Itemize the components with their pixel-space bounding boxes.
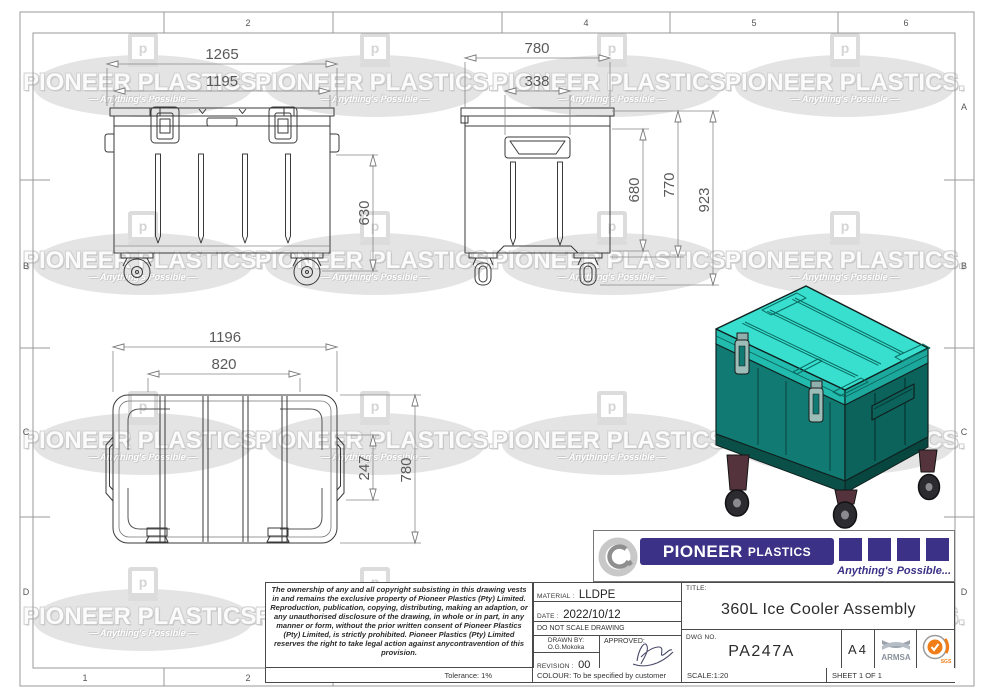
rib <box>243 154 248 243</box>
drawing-sheet: pPIONEER PLASTICS.— Anything's Possible … <box>0 0 990 700</box>
logo-wordmark: PIONEER PLASTICS <box>640 538 834 565</box>
signature <box>629 637 679 667</box>
drawing-title: 360L Ice Cooler Assembly <box>682 590 955 629</box>
dwg-no-cell: DWG NO. PA247A <box>682 630 842 668</box>
dwg-no-value: PA247A <box>682 636 841 668</box>
material-label: MATERIAL : <box>537 593 574 600</box>
rib <box>558 162 563 245</box>
sheet-note: SHEET 1 OF 1 <box>827 668 955 683</box>
brand-tagline: Anything's Possible... <box>837 565 951 577</box>
brand-name: PIONEER <box>663 542 743 562</box>
title-block: MATERIAL : LLDPE DATE : 2022/10/12 DO NO… <box>533 582 955 683</box>
grid-label: B <box>23 261 29 271</box>
dim-body-height: 770 <box>661 172 678 197</box>
grid-label: 6 <box>903 18 908 28</box>
rib <box>199 154 204 243</box>
side-view <box>461 108 614 285</box>
caster-wheel <box>834 490 858 528</box>
grid-label: 2 <box>245 18 250 28</box>
drawn-by-cell: DRAWN BY: O.G.Mokoka <box>533 636 600 653</box>
logo-square <box>926 538 949 561</box>
date-label: DATE : <box>537 613 559 620</box>
grid-label: 4 <box>583 18 588 28</box>
dim-body-height: 630 <box>356 200 373 225</box>
grid-label: C <box>961 427 968 437</box>
armsa-cert-cell: ARMSA <box>875 630 917 668</box>
tolerance-note: Tolerance: 1% <box>266 667 532 682</box>
paper-size-cell: A4 <box>842 630 875 668</box>
dim-overall-height: 923 <box>696 187 713 212</box>
logo-square <box>839 538 862 561</box>
front-view-dim-text: 1265 1195 630 <box>205 46 373 226</box>
pioneer-swirl-icon <box>596 534 640 580</box>
grid-label: D <box>961 587 968 597</box>
logo-square <box>897 538 920 561</box>
sgs-logo: SGS <box>920 633 952 665</box>
material-value: LLDPE <box>579 589 615 601</box>
date-value: 2022/10/12 <box>563 609 621 621</box>
grid-label: A <box>961 102 967 112</box>
rib <box>511 162 516 245</box>
grid-label: B <box>961 261 967 271</box>
dim-overall-depth: 780 <box>398 457 415 482</box>
dim-handle-width: 338 <box>524 73 549 90</box>
copyright-text: The ownership of any and all copyright s… <box>270 585 528 667</box>
grid-label: 1 <box>82 673 87 683</box>
colour-note: COLOUR: To be specified by customer <box>533 668 682 683</box>
dim-overall-width: 1265 <box>205 46 238 63</box>
drawn-by-label: DRAWN BY: <box>533 637 599 644</box>
svg-text:ARMSA: ARMSA <box>881 653 911 662</box>
latch <box>151 107 179 143</box>
grid-label: 2 <box>245 673 250 683</box>
latch <box>809 381 823 422</box>
top-view <box>106 395 344 543</box>
grid-label: 5 <box>751 18 756 28</box>
caster <box>469 253 497 285</box>
caster-mark <box>267 528 289 542</box>
material-cell: MATERIAL : LLDPE <box>533 582 682 602</box>
side-handle <box>505 137 570 158</box>
dim-lid-width: 1195 <box>206 73 238 90</box>
company-logo-block: PIONEER PLASTICS Anything's Possible... <box>593 530 955 582</box>
drawn-by-value: O.G.Mokoka <box>533 644 599 651</box>
sgs-cert-cell: SGS <box>917 630 955 668</box>
armsa-logo: ARMSA <box>876 632 916 666</box>
top-view-dim-text: 1196 820 247 780 <box>209 329 415 483</box>
grid-label: D <box>23 587 30 597</box>
scale-note: SCALE:1:20 <box>682 668 827 683</box>
caster-wheel <box>726 455 750 516</box>
logo-square <box>868 538 891 561</box>
dim-inner-height: 680 <box>626 177 643 202</box>
rib <box>156 154 161 243</box>
lid-handle <box>207 118 237 126</box>
copyright-block: The ownership of any and all copyright s… <box>265 582 533 683</box>
dim-overall-depth: 780 <box>524 40 549 57</box>
brand-name-2: PLASTICS <box>748 545 811 559</box>
dim-overall-length: 1196 <box>209 329 241 346</box>
caster <box>574 253 602 285</box>
latch <box>269 107 297 143</box>
revision-cell: REVISION : 00 <box>533 653 600 668</box>
caster <box>121 253 153 285</box>
latch <box>735 333 749 374</box>
top-view-dimensions <box>113 344 421 543</box>
caster-wheel <box>919 450 940 500</box>
dim-lid-length: 820 <box>211 356 236 373</box>
grid-label: C <box>23 427 30 437</box>
side-view-dimensions <box>465 55 719 285</box>
rib <box>286 154 291 243</box>
caster <box>291 253 323 285</box>
no-scale-note: DO NOT SCALE DRAWING <box>533 622 682 636</box>
side-handle-tab <box>105 134 114 152</box>
approved-cell: APPROVED: <box>600 636 682 668</box>
side-handle-tab <box>330 134 339 152</box>
title-cell: TITLE: 360L Ice Cooler Assembly <box>682 582 955 630</box>
dim-handle-span: 247 <box>356 455 373 480</box>
date-cell: DATE : 2022/10/12 <box>533 602 682 622</box>
svg-text:SGS: SGS <box>941 659 952 665</box>
isometric-view <box>716 286 940 528</box>
front-view <box>105 107 339 285</box>
